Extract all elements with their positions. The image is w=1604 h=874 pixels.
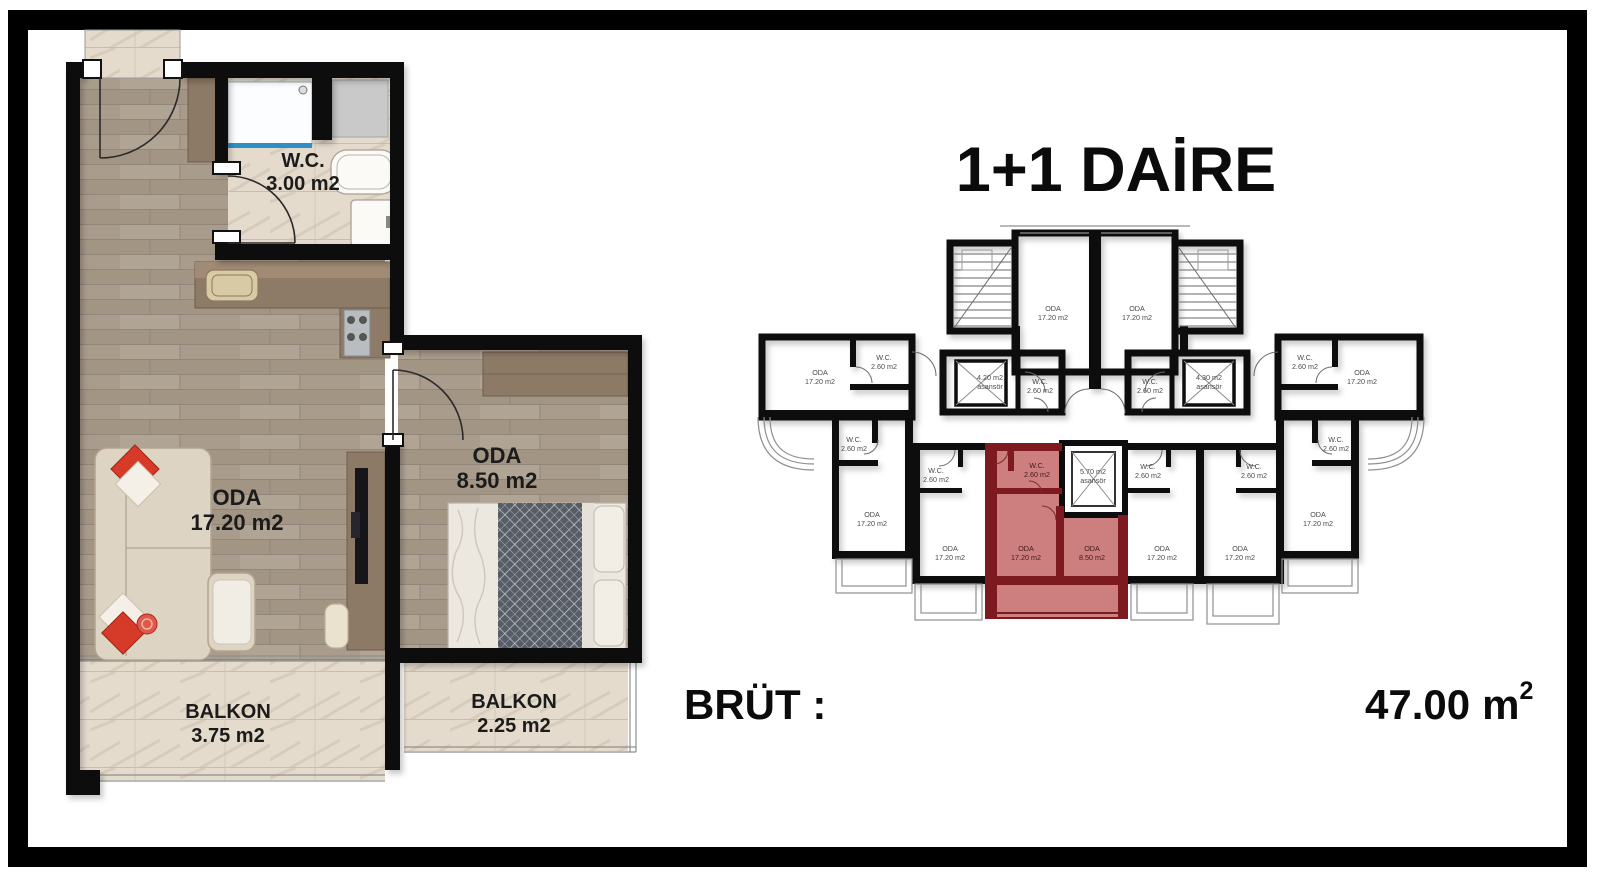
detail-floor-plan: ODA 17.20 m2 ODA 8.50 m2 W.C. 3.00 m2 BA… — [66, 30, 642, 795]
wc-area: 3.00 m2 — [266, 173, 339, 195]
stove — [344, 310, 370, 356]
svg-text:2.60 m2: 2.60 m2 — [1292, 362, 1318, 371]
bedroom-name: ODA — [473, 443, 522, 468]
svg-text:W.C.: W.C. — [1029, 461, 1045, 470]
sheet-title: 1+1 DAİRE — [956, 135, 1276, 205]
svg-text:W.C.: W.C. — [846, 435, 862, 444]
balcony-left-name: BALKON — [185, 701, 271, 723]
svg-text:2.60 m2: 2.60 m2 — [1137, 386, 1163, 395]
svg-text:17.20 m2: 17.20 m2 — [1347, 377, 1377, 386]
bedroom-area: 8.50 m2 — [457, 468, 538, 493]
svg-text:asansör: asansör — [1080, 476, 1106, 485]
svg-text:ODA: ODA — [1310, 510, 1326, 519]
svg-text:W.C.: W.C. — [1328, 435, 1344, 444]
svg-text:ODA: ODA — [1232, 544, 1248, 553]
svg-text:asansör: asansör — [977, 382, 1003, 391]
gross-area-value: 47.00m2 — [1365, 677, 1533, 728]
svg-text:17.20 m2: 17.20 m2 — [1122, 313, 1152, 322]
key-plan: ODA 17.20 m2 ODA 17.20 m2 ODA 17.20 m2 W… — [758, 226, 1424, 624]
svg-text:4.20 m2: 4.20 m2 — [977, 373, 1003, 382]
svg-text:17.20 m2: 17.20 m2 — [805, 377, 835, 386]
svg-text:ODA: ODA — [1154, 544, 1170, 553]
bed — [448, 503, 626, 649]
svg-text:2.60 m2: 2.60 m2 — [1323, 444, 1349, 453]
wc-name: W.C. — [281, 150, 324, 172]
svg-text:2.60 m2: 2.60 m2 — [1135, 471, 1161, 480]
svg-text:17.20 m2: 17.20 m2 — [1303, 519, 1333, 528]
svg-text:17.20 m2: 17.20 m2 — [1011, 553, 1041, 562]
svg-text:17.20 m2: 17.20 m2 — [935, 553, 965, 562]
pouf — [325, 604, 348, 648]
plan-canvas: ODA 17.20 m2 ODA 8.50 m2 W.C. 3.00 m2 BA… — [0, 0, 1604, 874]
svg-text:2.60 m2: 2.60 m2 — [1241, 471, 1267, 480]
svg-text:W.C.: W.C. — [1140, 462, 1156, 471]
svg-text:17.20 m2: 17.20 m2 — [857, 519, 887, 528]
svg-text:ODA: ODA — [1018, 544, 1034, 553]
svg-text:17.20 m2: 17.20 m2 — [1225, 553, 1255, 562]
svg-text:asansör: asansör — [1196, 382, 1222, 391]
svg-text:2.60 m2: 2.60 m2 — [1024, 470, 1050, 479]
svg-text:4.30 m2: 4.30 m2 — [1196, 373, 1222, 382]
gross-area-label: BRÜT : — [684, 681, 826, 728]
bathtub — [331, 150, 397, 194]
detail-floors — [80, 30, 628, 780]
floor-plan-sheet: ODA 17.20 m2 ODA 8.50 m2 W.C. 3.00 m2 BA… — [0, 0, 1604, 874]
balcony-right-area: 2.25 m2 — [477, 715, 550, 737]
svg-text:2.60 m2: 2.60 m2 — [1027, 386, 1053, 395]
svg-text:ODA: ODA — [812, 368, 828, 377]
svg-text:W.C.: W.C. — [1142, 377, 1158, 386]
svg-text:ODA: ODA — [1084, 544, 1100, 553]
svg-text:ODA: ODA — [1045, 304, 1061, 313]
svg-text:W.C.: W.C. — [1246, 462, 1262, 471]
svg-text:17.20 m2: 17.20 m2 — [1147, 553, 1177, 562]
svg-text:17.20 m2: 17.20 m2 — [1038, 313, 1068, 322]
balcony-right-name: BALKON — [471, 691, 557, 713]
balcony-left-area: 3.75 m2 — [191, 725, 264, 747]
svg-text:W.C.: W.C. — [1032, 377, 1048, 386]
svg-text:2.60 m2: 2.60 m2 — [871, 362, 897, 371]
svg-text:8.50 m2: 8.50 m2 — [1079, 553, 1105, 562]
living-room-area: 17.20 m2 — [191, 510, 284, 535]
svg-text:ODA: ODA — [864, 510, 880, 519]
svg-text:ODA: ODA — [1129, 304, 1145, 313]
svg-text:2.60 m2: 2.60 m2 — [841, 444, 867, 453]
svg-text:W.C.: W.C. — [928, 466, 944, 475]
svg-text:2.60 m2: 2.60 m2 — [923, 475, 949, 484]
shaft — [332, 80, 388, 137]
svg-text:ODA: ODA — [1354, 368, 1370, 377]
svg-text:W.C.: W.C. — [876, 353, 892, 362]
living-room-name: ODA — [213, 485, 262, 510]
entry-cabinet — [188, 78, 218, 162]
svg-text:5.70 m2: 5.70 m2 — [1080, 467, 1106, 476]
svg-text:W.C.: W.C. — [1297, 353, 1313, 362]
svg-text:ODA: ODA — [942, 544, 958, 553]
